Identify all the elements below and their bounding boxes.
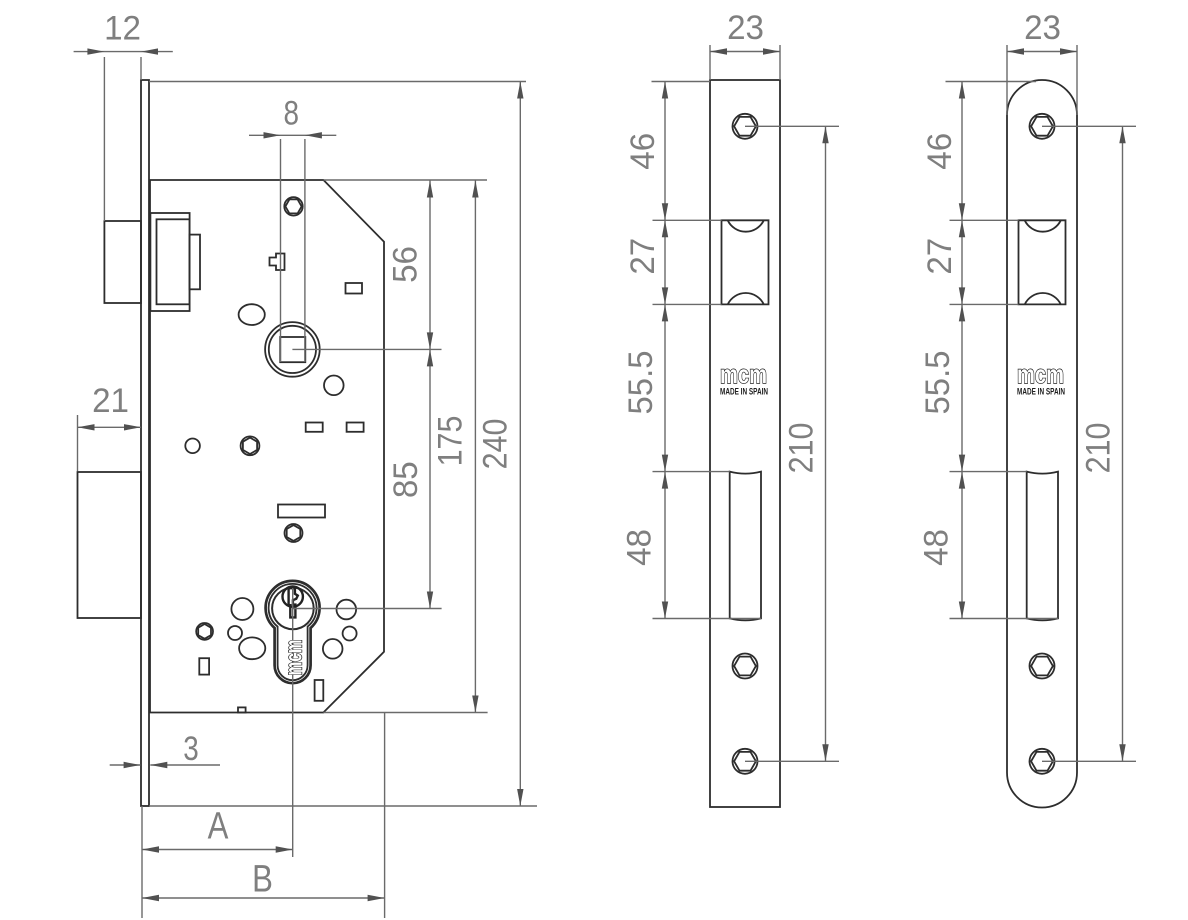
svg-text:48: 48 xyxy=(917,529,955,566)
svg-text:210: 210 xyxy=(782,423,820,474)
svg-text:mcm: mcm xyxy=(1017,359,1064,389)
svg-text:mcm: mcm xyxy=(720,359,767,389)
svg-text:240: 240 xyxy=(476,419,514,470)
svg-text:MADE IN SPAIN: MADE IN SPAIN xyxy=(1017,387,1065,397)
svg-text:175: 175 xyxy=(431,416,469,467)
svg-text:MADE IN SPAIN: MADE IN SPAIN xyxy=(720,387,768,397)
svg-text:85: 85 xyxy=(387,461,425,498)
svg-text:8: 8 xyxy=(284,94,300,132)
svg-text:23: 23 xyxy=(1024,8,1061,46)
svg-text:55.5: 55.5 xyxy=(918,351,956,415)
svg-text:46: 46 xyxy=(624,133,662,170)
svg-text:210: 210 xyxy=(1079,423,1117,474)
svg-text:27: 27 xyxy=(921,238,959,275)
svg-text:23: 23 xyxy=(727,8,764,46)
svg-text:B: B xyxy=(252,859,273,901)
svg-text:A: A xyxy=(208,806,230,848)
svg-text:46: 46 xyxy=(921,133,959,170)
svg-text:48: 48 xyxy=(620,529,658,566)
svg-text:27: 27 xyxy=(624,238,662,275)
svg-text:3: 3 xyxy=(183,729,199,767)
svg-text:12: 12 xyxy=(104,9,141,47)
svg-text:55.5: 55.5 xyxy=(621,351,659,415)
svg-text:56: 56 xyxy=(386,246,424,283)
svg-text:mcm: mcm xyxy=(280,640,306,676)
svg-text:21: 21 xyxy=(92,381,129,419)
